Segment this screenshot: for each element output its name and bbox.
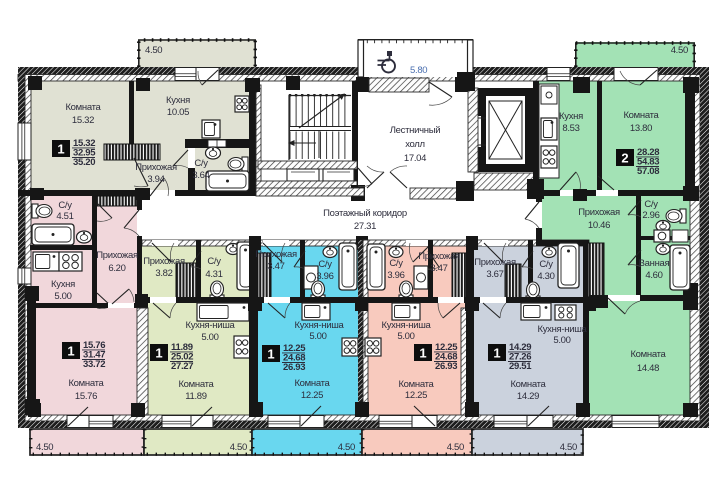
svg-text:26.93: 26.93 xyxy=(435,361,457,372)
svg-text:Кухня-ниша: Кухня-ниша xyxy=(381,320,431,331)
svg-text:3.94: 3.94 xyxy=(147,174,164,185)
svg-text:10.05: 10.05 xyxy=(167,107,189,118)
svg-text:1: 1 xyxy=(67,344,74,359)
svg-text:6.20: 6.20 xyxy=(108,263,125,274)
svg-text:14.29: 14.29 xyxy=(517,391,539,402)
svg-text:Прихожая: Прихожая xyxy=(255,249,297,260)
svg-text:Прихожая: Прихожая xyxy=(578,207,620,218)
svg-text:С/у: С/у xyxy=(644,199,658,210)
svg-text:2: 2 xyxy=(621,151,628,166)
svg-text:15.32: 15.32 xyxy=(72,115,94,126)
svg-text:5.00: 5.00 xyxy=(553,335,570,346)
svg-text:1: 1 xyxy=(493,346,500,361)
svg-text:27.27: 27.27 xyxy=(171,361,193,372)
svg-text:Кухня: Кухня xyxy=(559,111,583,122)
svg-text:Прихожая: Прихожая xyxy=(143,256,185,267)
svg-text:Кухня: Кухня xyxy=(51,279,75,290)
svg-text:4.31: 4.31 xyxy=(205,269,222,280)
svg-text:С/у: С/у xyxy=(194,158,208,169)
svg-text:17.04: 17.04 xyxy=(404,153,426,164)
svg-text:Кухня-ниша: Кухня-ниша xyxy=(537,324,587,335)
svg-text:Прихожая: Прихожая xyxy=(96,250,138,261)
svg-text:Комната: Комната xyxy=(510,379,546,390)
svg-text:26.93: 26.93 xyxy=(283,362,305,373)
svg-text:33.72: 33.72 xyxy=(83,359,105,370)
svg-text:11.89: 11.89 xyxy=(185,391,207,402)
svg-text:С/у: С/у xyxy=(539,259,553,270)
svg-text:12.25: 12.25 xyxy=(301,390,323,401)
svg-text:10.46: 10.46 xyxy=(588,220,610,231)
svg-text:4.50: 4.50 xyxy=(447,442,464,453)
svg-text:3.47: 3.47 xyxy=(430,263,447,274)
svg-text:3.96: 3.96 xyxy=(316,271,333,282)
svg-text:5.00: 5.00 xyxy=(54,291,71,302)
svg-text:35.20: 35.20 xyxy=(73,157,95,168)
svg-text:5.00: 5.00 xyxy=(309,331,326,342)
svg-text:С/у: С/у xyxy=(318,259,332,270)
svg-text:3.47: 3.47 xyxy=(267,261,284,272)
svg-text:1: 1 xyxy=(267,347,274,362)
svg-text:Комната: Комната xyxy=(178,379,214,390)
svg-text:1: 1 xyxy=(57,142,64,157)
svg-text:Комната: Комната xyxy=(68,378,104,389)
svg-text:2.96: 2.96 xyxy=(642,210,659,221)
svg-text:С/у: С/у xyxy=(58,200,72,211)
svg-text:4.60: 4.60 xyxy=(645,270,662,281)
svg-text:13.80: 13.80 xyxy=(630,123,652,134)
svg-text:Ванная: Ванная xyxy=(639,258,670,269)
svg-text:холл: холл xyxy=(405,139,425,150)
svg-text:3.96: 3.96 xyxy=(387,270,404,281)
svg-text:27.31: 27.31 xyxy=(354,221,376,232)
svg-text:Комната: Комната xyxy=(65,102,101,113)
svg-text:Кухня: Кухня xyxy=(166,95,190,106)
svg-text:3.82: 3.82 xyxy=(155,268,172,279)
svg-text:4.50: 4.50 xyxy=(230,442,247,453)
svg-text:Комната: Комната xyxy=(294,378,330,389)
svg-text:4.50: 4.50 xyxy=(671,45,688,56)
svg-text:Прихожая: Прихожая xyxy=(474,257,516,268)
svg-text:1: 1 xyxy=(155,346,162,361)
svg-text:3.64: 3.64 xyxy=(192,170,209,181)
svg-text:4.51: 4.51 xyxy=(56,211,73,222)
svg-text:12.25: 12.25 xyxy=(405,390,427,401)
svg-text:5.00: 5.00 xyxy=(397,331,414,342)
svg-text:8.53: 8.53 xyxy=(562,123,579,134)
svg-text:С/у: С/у xyxy=(389,258,403,269)
svg-text:3.67: 3.67 xyxy=(486,269,503,280)
svg-text:57.08: 57.08 xyxy=(637,166,659,177)
svg-text:4.50: 4.50 xyxy=(338,442,355,453)
svg-text:15.76: 15.76 xyxy=(75,391,97,402)
svg-text:29.51: 29.51 xyxy=(509,361,532,372)
svg-text:5.80: 5.80 xyxy=(410,65,427,76)
svg-text:4.50: 4.50 xyxy=(560,442,577,453)
svg-text:Комната: Комната xyxy=(623,110,659,121)
svg-text:Комната: Комната xyxy=(630,349,666,360)
svg-text:4.30: 4.30 xyxy=(537,271,554,282)
svg-text:Кухня-ниша: Кухня-ниша xyxy=(294,320,344,331)
svg-text:Комната: Комната xyxy=(398,379,434,390)
svg-text:Поэтажный коридор: Поэтажный коридор xyxy=(323,208,407,219)
svg-text:5.00: 5.00 xyxy=(201,332,218,343)
svg-text:4.50: 4.50 xyxy=(36,442,53,453)
svg-text:Прихожая: Прихожая xyxy=(418,251,460,262)
svg-text:Прихожая: Прихожая xyxy=(135,162,177,173)
svg-text:Кухня-ниша: Кухня-ниша xyxy=(185,320,235,331)
svg-text:14.48: 14.48 xyxy=(637,363,659,374)
svg-text:Лестничный: Лестничный xyxy=(390,125,441,136)
svg-text:1: 1 xyxy=(419,346,426,361)
svg-text:С/у: С/у xyxy=(207,256,221,267)
svg-text:4.50: 4.50 xyxy=(145,45,162,56)
